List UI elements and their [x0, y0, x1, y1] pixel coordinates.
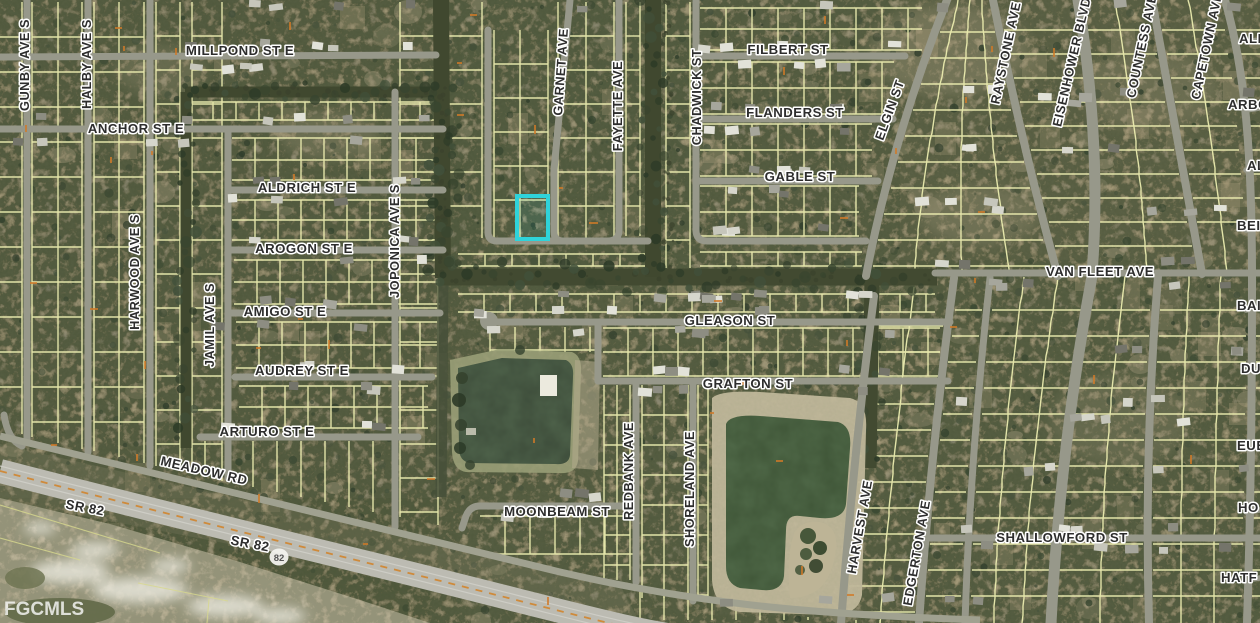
svg-text:JOPONICA AVE S: JOPONICA AVE S: [387, 184, 402, 298]
svg-text:GUNBY AVE S: GUNBY AVE S: [17, 19, 32, 111]
svg-text:FLANDERS ST: FLANDERS ST: [746, 105, 844, 120]
svg-text:SHALLOWFORD ST: SHALLOWFORD ST: [996, 530, 1128, 545]
svg-text:FGCMLS: FGCMLS: [4, 599, 84, 620]
svg-text:CHADWICK ST: CHADWICK ST: [689, 49, 704, 146]
svg-text:MOONBEAM ST: MOONBEAM ST: [504, 504, 610, 519]
svg-text:82: 82: [274, 553, 285, 564]
svg-text:SHORELAND AVE: SHORELAND AVE: [682, 431, 697, 547]
svg-text:DU: DU: [1241, 361, 1260, 376]
svg-text:ALDRICH ST E: ALDRICH ST E: [258, 180, 356, 195]
svg-text:REDBANK AVE: REDBANK AVE: [621, 422, 636, 520]
svg-text:BEI: BEI: [1237, 218, 1260, 233]
svg-text:AROGON ST E: AROGON ST E: [255, 241, 353, 256]
svg-text:EUE: EUE: [1237, 438, 1260, 453]
svg-text:ANCHOR ST E: ANCHOR ST E: [88, 121, 184, 136]
svg-text:ARBO: ARBO: [1228, 97, 1260, 112]
svg-text:AMIGO ST E: AMIGO ST E: [244, 304, 327, 319]
svg-text:HATF: HATF: [1221, 570, 1257, 585]
svg-text:VAN FLEET AVE: VAN FLEET AVE: [1046, 264, 1154, 279]
svg-text:ALB: ALB: [1239, 31, 1260, 46]
svg-text:MILLPOND ST E: MILLPOND ST E: [186, 43, 294, 58]
svg-text:ARTURO ST E: ARTURO ST E: [220, 424, 315, 439]
svg-text:GLEASON ST: GLEASON ST: [685, 313, 776, 328]
svg-text:GABLE ST: GABLE ST: [765, 169, 836, 184]
svg-text:HALBY AVE S: HALBY AVE S: [79, 19, 94, 109]
svg-text:AL: AL: [1247, 158, 1260, 173]
svg-text:FAYETTE AVE: FAYETTE AVE: [610, 61, 625, 151]
svg-text:BAI: BAI: [1237, 298, 1260, 313]
svg-text:FILBERT ST: FILBERT ST: [747, 42, 828, 57]
svg-text:GRAFTON ST: GRAFTON ST: [703, 376, 793, 391]
svg-text:JAMIL AVE S: JAMIL AVE S: [202, 283, 217, 367]
svg-text:HO: HO: [1238, 500, 1259, 515]
svg-text:HARWOOD AVE S: HARWOOD AVE S: [127, 214, 142, 330]
svg-text:AUDREY ST E: AUDREY ST E: [255, 363, 349, 378]
